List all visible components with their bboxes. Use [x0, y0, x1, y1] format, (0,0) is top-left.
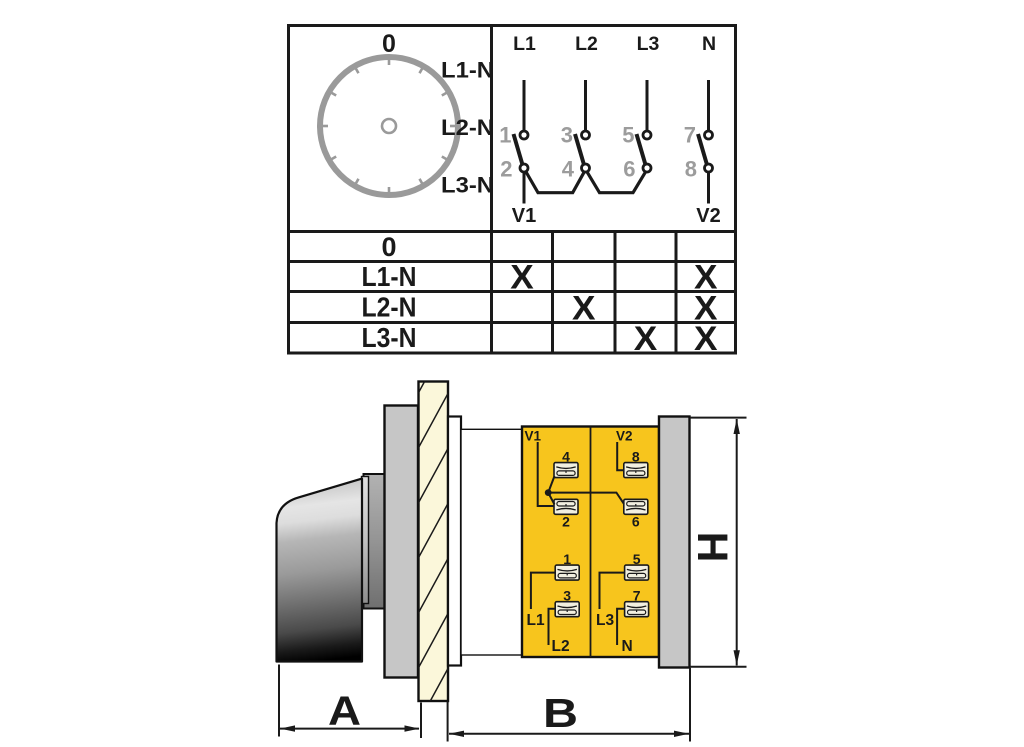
svg-text:V2: V2	[616, 429, 633, 444]
svg-text:1: 1	[499, 123, 511, 148]
svg-text:N: N	[622, 638, 633, 655]
svg-text:L2-N: L2-N	[362, 292, 417, 323]
svg-text:A: A	[328, 688, 361, 734]
svg-text:4: 4	[562, 157, 575, 182]
svg-text:3: 3	[561, 123, 573, 148]
svg-text:B: B	[543, 690, 578, 736]
svg-text:5: 5	[622, 123, 634, 148]
svg-text:2: 2	[500, 157, 512, 182]
svg-text:X: X	[572, 290, 596, 328]
svg-text:L3: L3	[596, 612, 614, 629]
svg-text:6: 6	[623, 157, 635, 182]
svg-text:L2-N: L2-N	[441, 115, 494, 140]
svg-text:X: X	[634, 320, 658, 358]
svg-text:2: 2	[562, 514, 570, 530]
svg-text:X: X	[510, 259, 534, 297]
svg-text:6: 6	[632, 514, 640, 530]
svg-text:L2: L2	[552, 638, 570, 655]
svg-text:N: N	[702, 33, 716, 55]
svg-text:1: 1	[563, 551, 571, 567]
svg-text:L3-N: L3-N	[441, 173, 494, 198]
svg-text:8: 8	[632, 448, 640, 464]
svg-text:V2: V2	[696, 205, 720, 227]
svg-text:L3: L3	[637, 33, 660, 55]
svg-text:7: 7	[633, 587, 641, 603]
svg-text:L2: L2	[575, 33, 598, 55]
svg-text:3: 3	[563, 587, 571, 603]
svg-text:0: 0	[381, 232, 396, 262]
svg-text:X: X	[694, 320, 718, 358]
svg-text:7: 7	[684, 123, 696, 148]
svg-text:4: 4	[562, 448, 570, 464]
svg-text:V1: V1	[512, 205, 536, 227]
svg-text:L1: L1	[513, 33, 536, 55]
svg-text:5: 5	[633, 551, 641, 567]
svg-text:L1-N: L1-N	[362, 261, 417, 292]
svg-text:L3-N: L3-N	[362, 322, 417, 353]
svg-text:H: H	[688, 532, 735, 563]
svg-text:V1: V1	[525, 429, 542, 444]
svg-text:8: 8	[685, 157, 697, 182]
svg-text:L1-N: L1-N	[441, 58, 494, 83]
svg-text:0: 0	[382, 30, 396, 58]
svg-text:L1: L1	[527, 612, 545, 629]
